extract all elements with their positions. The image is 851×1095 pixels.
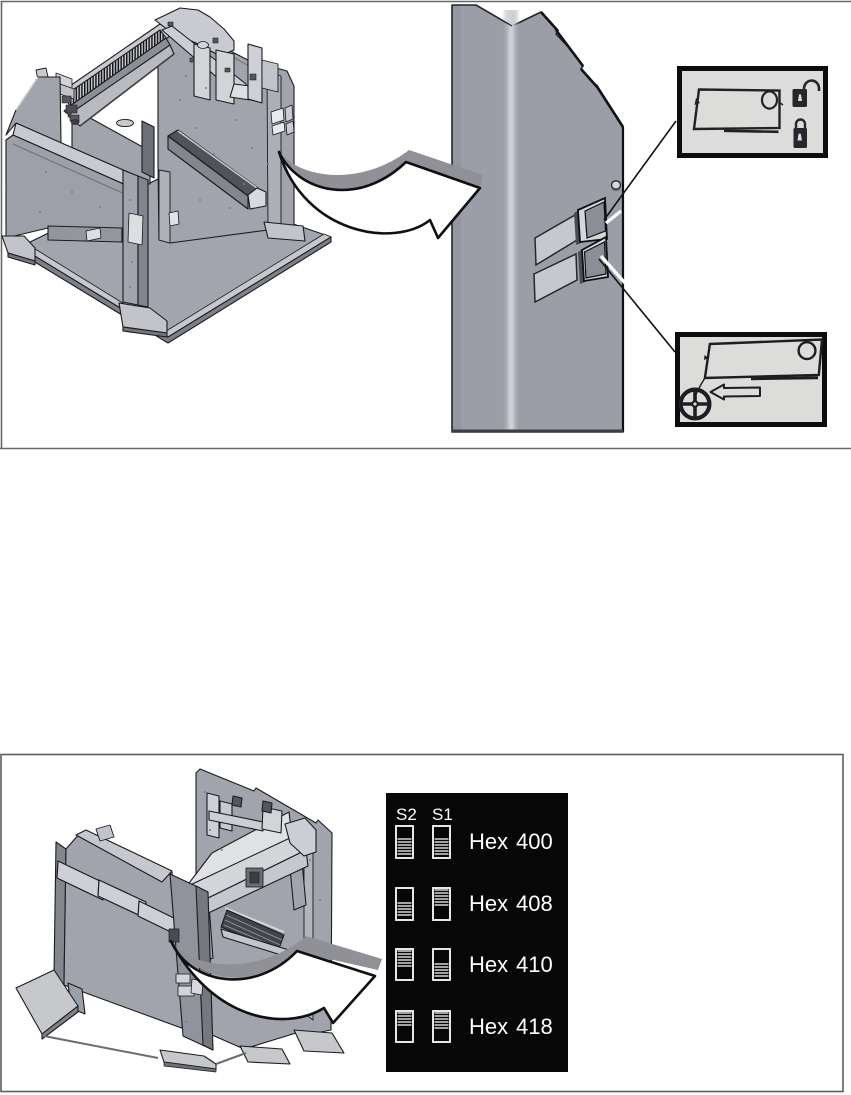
- svg-text:Hex: Hex: [469, 829, 508, 854]
- svg-text:418: 418: [516, 1014, 553, 1039]
- svg-text:400: 400: [516, 829, 553, 854]
- svg-text:Hex: Hex: [469, 952, 508, 977]
- svg-text:S1: S1: [432, 805, 453, 824]
- svg-text:408: 408: [516, 891, 553, 916]
- svg-text:Hex: Hex: [469, 1014, 508, 1039]
- svg-text:Hex: Hex: [469, 891, 508, 916]
- svg-text:S2: S2: [396, 805, 417, 824]
- svg-text:410: 410: [516, 952, 553, 977]
